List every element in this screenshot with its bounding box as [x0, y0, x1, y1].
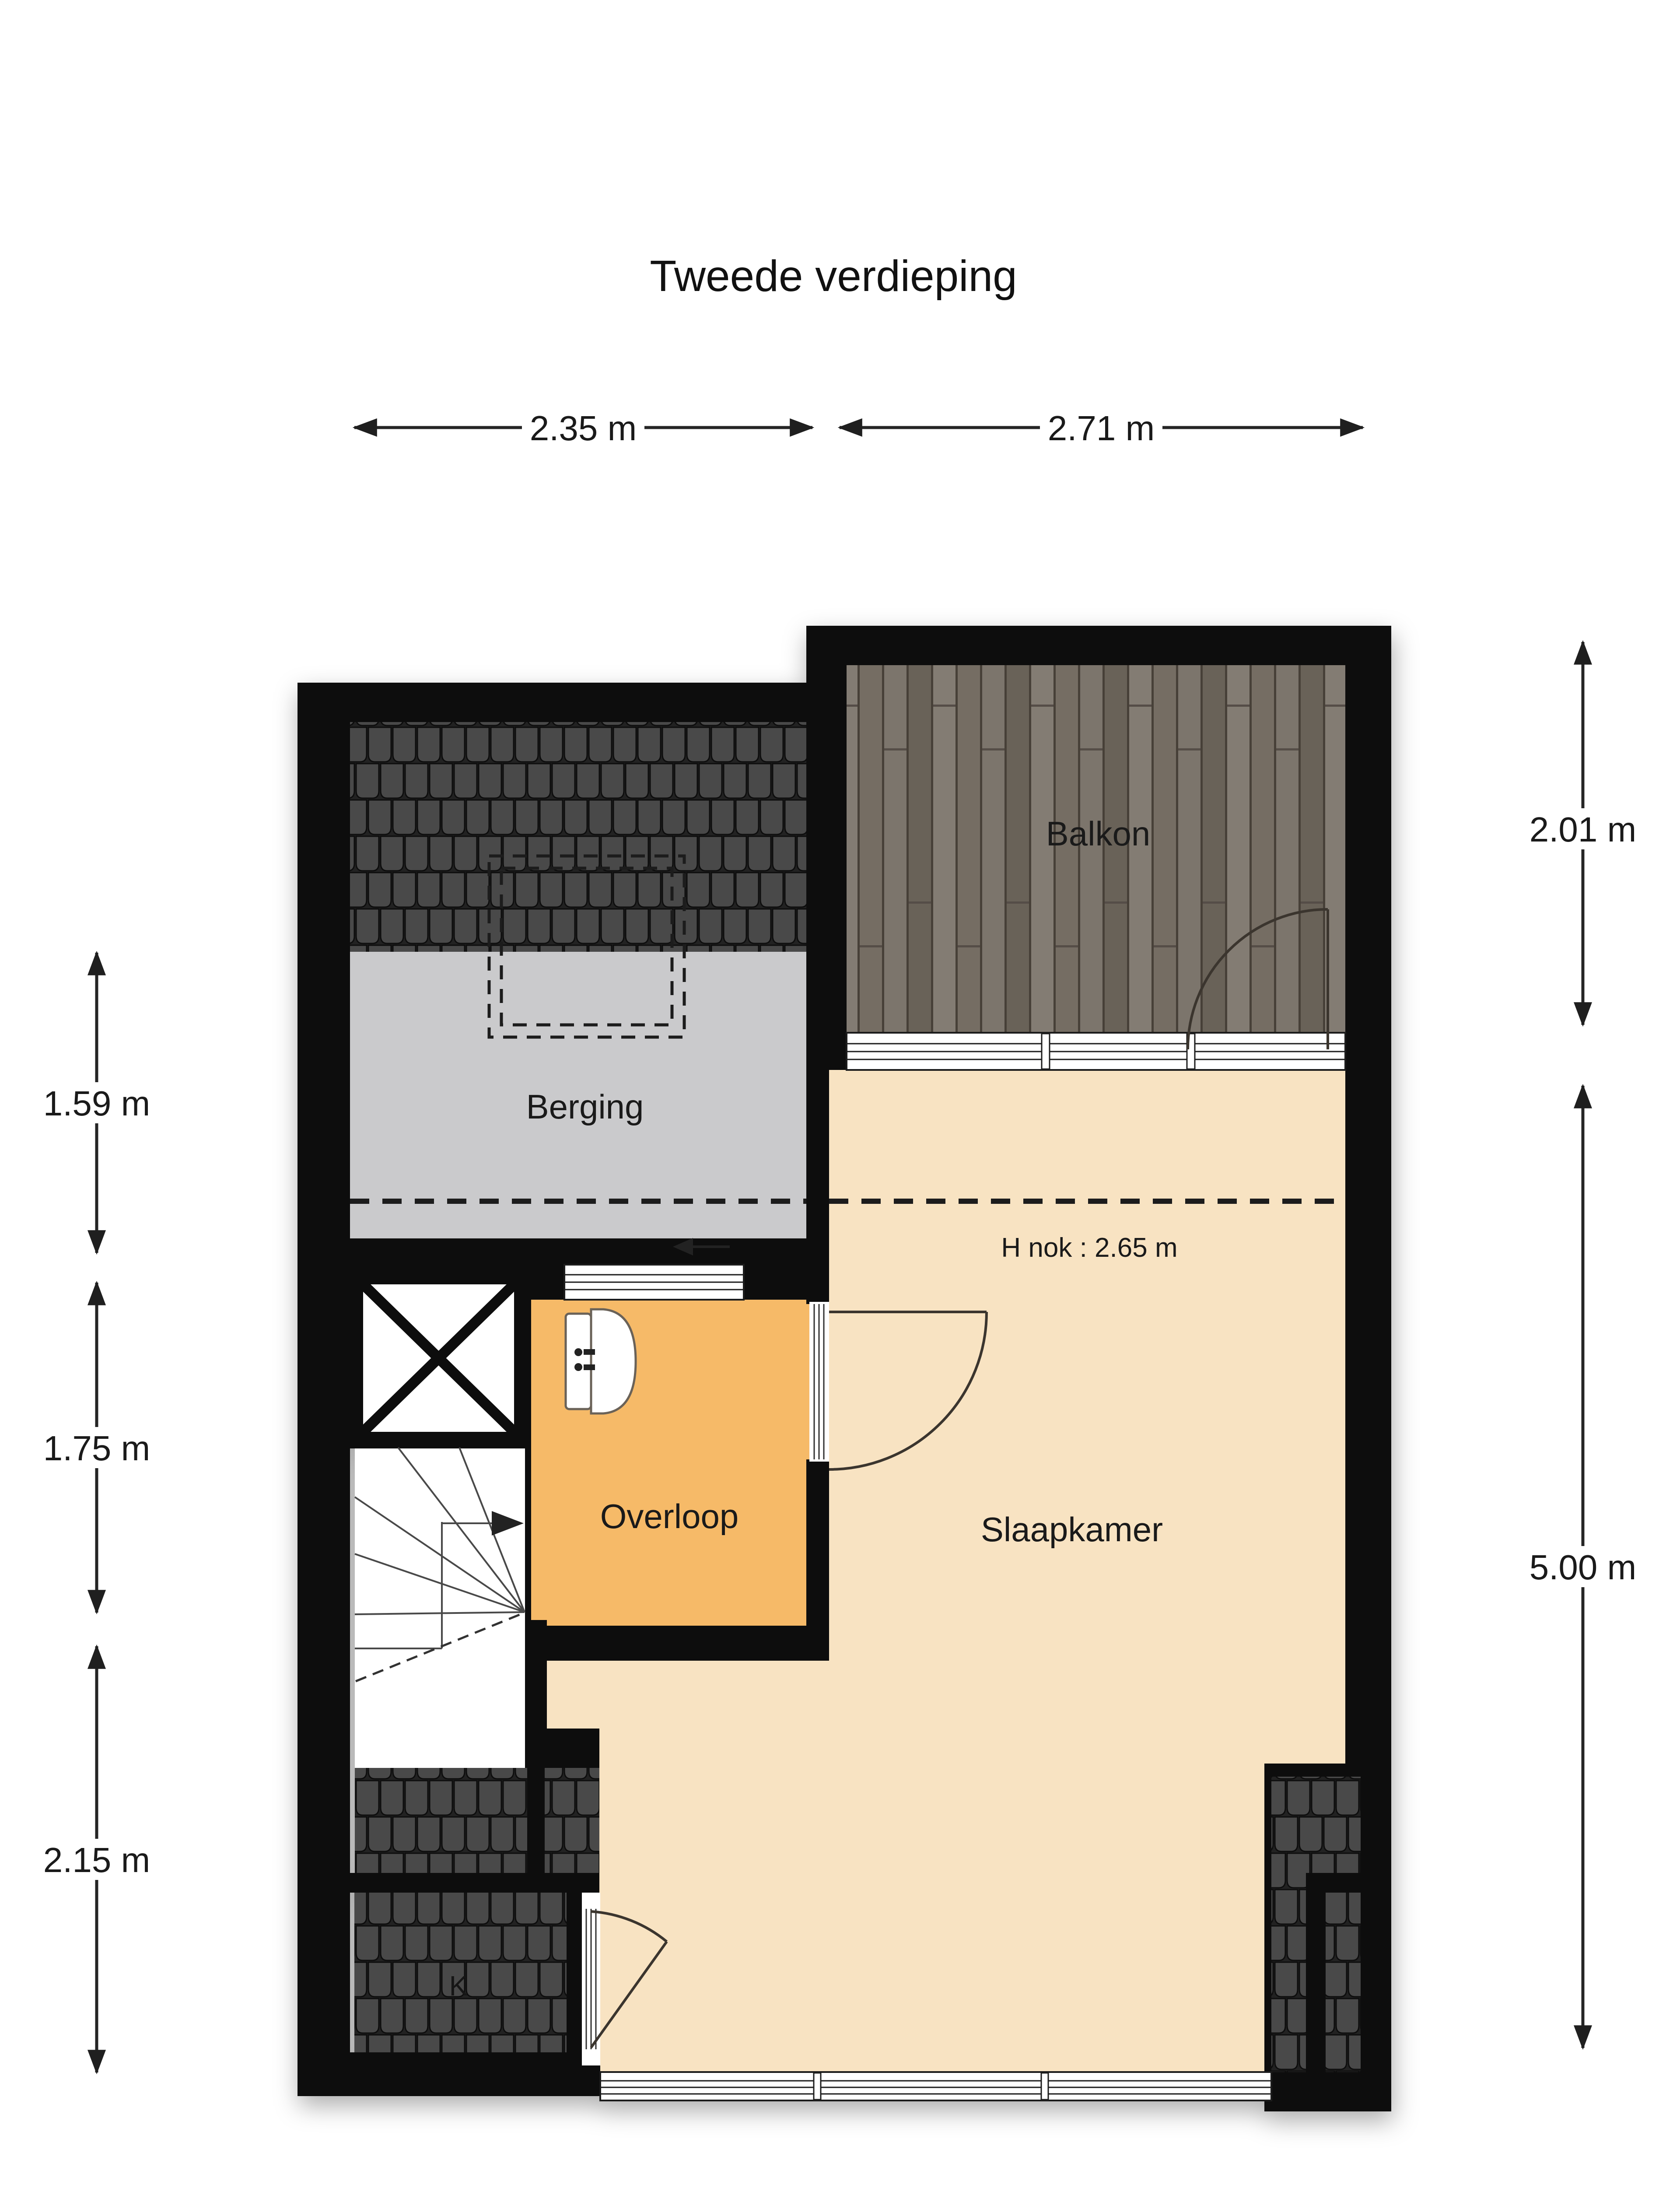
toilet-flush-icon [584, 1349, 595, 1355]
overloop-label: Overloop [600, 1497, 739, 1536]
wall-segment [525, 1265, 531, 1768]
balkon-label: Balkon [1046, 814, 1151, 853]
wall-segment [1306, 1893, 1326, 2072]
window-mullion [1041, 2073, 1048, 2100]
dimension-top-right-label: 2.71 m [1048, 409, 1155, 448]
wall-segment [297, 1873, 599, 1893]
wall-segment [744, 1265, 829, 1300]
wall-segment [525, 1626, 829, 1661]
toilet-flush-icon [584, 1364, 595, 1370]
wall-segment [1306, 1873, 1361, 1893]
window-berging [564, 1265, 744, 1300]
berging-roof-tiles [350, 722, 806, 952]
wall-segment [806, 626, 847, 1070]
wall-segment [297, 1238, 829, 1265]
plan-structure [297, 626, 1391, 2111]
floor-plan: Tweede verdieping [0, 0, 1680, 2188]
void-shaft [363, 1284, 514, 1432]
dimension-right-lower-label: 5.00 m [1529, 1548, 1637, 1587]
room-slaapkamer-extension2 [599, 1729, 829, 2072]
k-label: K [449, 1970, 468, 2002]
window-mullion [1042, 1034, 1050, 1069]
dimension-left-middle-label: 1.75 m [43, 1429, 150, 1468]
berging-label: Berging [526, 1087, 644, 1126]
roof-tiles-strip [545, 1768, 599, 1873]
wall-segment [297, 2052, 600, 2096]
page-title: Tweede verdieping [650, 252, 1017, 301]
window-balkon [847, 1033, 1345, 1070]
wall-segment [297, 683, 829, 722]
toilet-flush-icon [574, 1348, 582, 1356]
stairs-area [355, 1448, 525, 1768]
wall-segment [527, 1768, 545, 1873]
stairs [355, 1448, 525, 1768]
toilet-flush-icon [574, 1363, 582, 1371]
ridge-height-label: H nok : 2.65 m [1001, 1233, 1177, 1263]
dimension-top-left-label: 2.35 m [530, 409, 637, 448]
toilet-icon [566, 1309, 636, 1413]
dimension-left-lower-label: 2.15 m [43, 1841, 150, 1879]
slaapkamer-label: Slaapkamer [981, 1510, 1163, 1549]
dimension-right-upper-label: 2.01 m [1529, 810, 1637, 849]
roof-tiles-under-stairs [355, 1768, 527, 1873]
wall-segment [806, 626, 1391, 665]
toilet-tank [566, 1314, 591, 1409]
dimension-left-upper-label: 1.59 m [43, 1084, 150, 1123]
window-band [600, 2072, 1271, 2100]
roof-notch [1271, 1777, 1361, 2072]
toilet-bowl [591, 1309, 636, 1413]
window-mullion [814, 2073, 821, 2100]
window-slaapkamer [600, 2072, 1271, 2100]
wall-segment [542, 1729, 599, 1768]
room-slaapkamer-extension [546, 1655, 829, 1729]
